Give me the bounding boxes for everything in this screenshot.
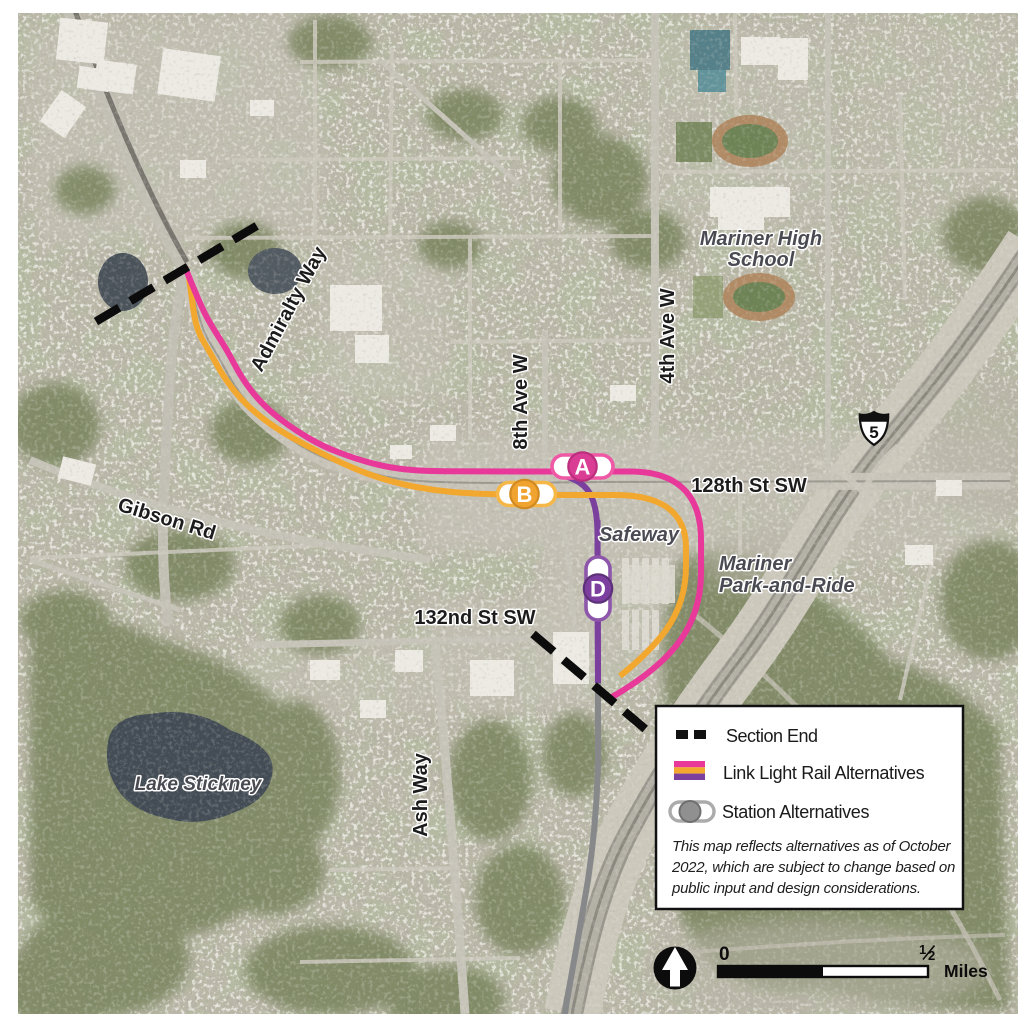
- svg-text:Section End: Section End: [726, 726, 818, 746]
- svg-text:Mariner High: Mariner High: [700, 228, 822, 250]
- svg-text:Station Alternatives: Station Alternatives: [722, 802, 869, 822]
- svg-text:Miles: Miles: [944, 961, 988, 981]
- svg-text:4th Ave W: 4th Ave W: [657, 288, 679, 383]
- svg-text:0: 0: [719, 944, 730, 965]
- svg-text:A: A: [575, 455, 591, 480]
- svg-text:5: 5: [869, 423, 878, 442]
- svg-text:2: 2: [928, 948, 935, 963]
- svg-text:Safeway: Safeway: [599, 524, 680, 546]
- svg-text:public input and design consid: public input and design considerations.: [671, 880, 921, 897]
- svg-text:Lake Stickney: Lake Stickney: [135, 774, 263, 795]
- svg-text:Ash Way: Ash Way: [410, 752, 432, 837]
- svg-text:Link Light Rail Alternatives: Link Light Rail Alternatives: [723, 763, 925, 783]
- svg-text:8th Ave W: 8th Ave W: [510, 354, 532, 449]
- svg-text:This map reflects alternatives: This map reflects alternatives as of Oct…: [672, 838, 952, 855]
- svg-text:School: School: [728, 249, 795, 271]
- svg-text:128th St SW: 128th St SW: [691, 475, 807, 497]
- svg-text:Park-and-Ride: Park-and-Ride: [719, 575, 855, 597]
- svg-text:B: B: [517, 482, 533, 507]
- svg-text:1: 1: [919, 942, 926, 957]
- svg-text:2022, which are subject to cha: 2022, which are subject to change based …: [671, 859, 955, 876]
- svg-text:D: D: [590, 577, 606, 602]
- svg-text:132nd St SW: 132nd St SW: [414, 607, 535, 629]
- svg-text:Mariner: Mariner: [719, 553, 792, 575]
